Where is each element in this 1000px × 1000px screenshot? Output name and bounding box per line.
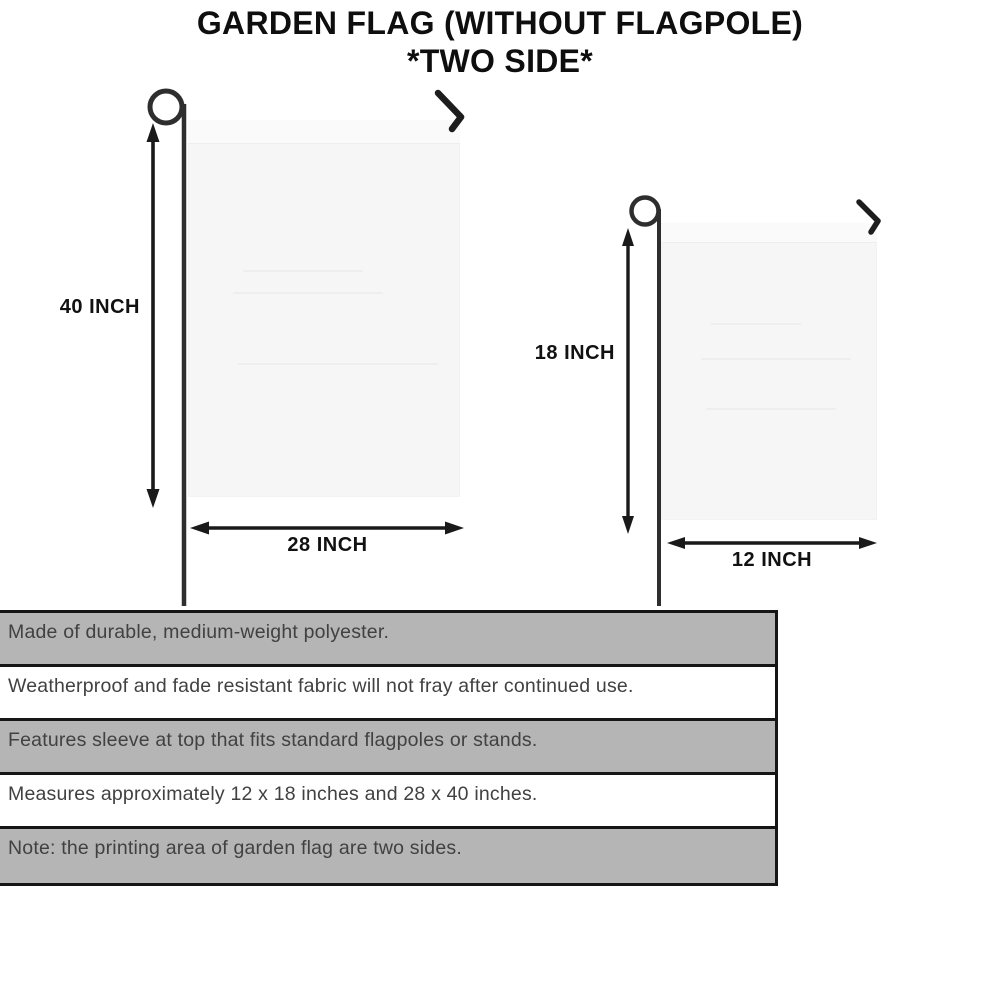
large-flag-width-label: 28 INCH <box>197 534 458 557</box>
large-flag-height-label: 40 INCH <box>30 296 140 319</box>
small-flagpole <box>632 198 660 607</box>
feature-row: Weatherproof and fade resistant fabric w… <box>0 667 775 721</box>
feature-row: Made of durable, medium-weight polyester… <box>0 613 775 667</box>
large-height-arrow <box>147 123 160 508</box>
large-width-arrow <box>190 522 464 535</box>
small-flag-height-label: 18 INCH <box>505 342 615 365</box>
feature-row: Note: the printing area of garden flag a… <box>0 829 775 883</box>
feature-row: Features sleeve at top that fits standar… <box>0 721 775 775</box>
feature-table: Made of durable, medium-weight polyester… <box>0 610 778 886</box>
small-flag-width-label: 12 INCH <box>668 549 876 572</box>
flagpole-loop-icon <box>150 91 182 123</box>
small-flag-hook-icon <box>859 202 878 232</box>
flagpole-loop-icon <box>632 198 659 225</box>
product-infographic: GARDEN FLAG (WITHOUT FLAGPOLE) *TWO SIDE… <box>0 0 1000 1000</box>
large-flagpole <box>150 91 184 606</box>
small-height-arrow <box>622 228 634 534</box>
feature-row: Measures approximately 12 x 18 inches an… <box>0 775 775 829</box>
small-width-arrow <box>667 537 877 549</box>
large-flag-hook-icon <box>438 93 461 129</box>
